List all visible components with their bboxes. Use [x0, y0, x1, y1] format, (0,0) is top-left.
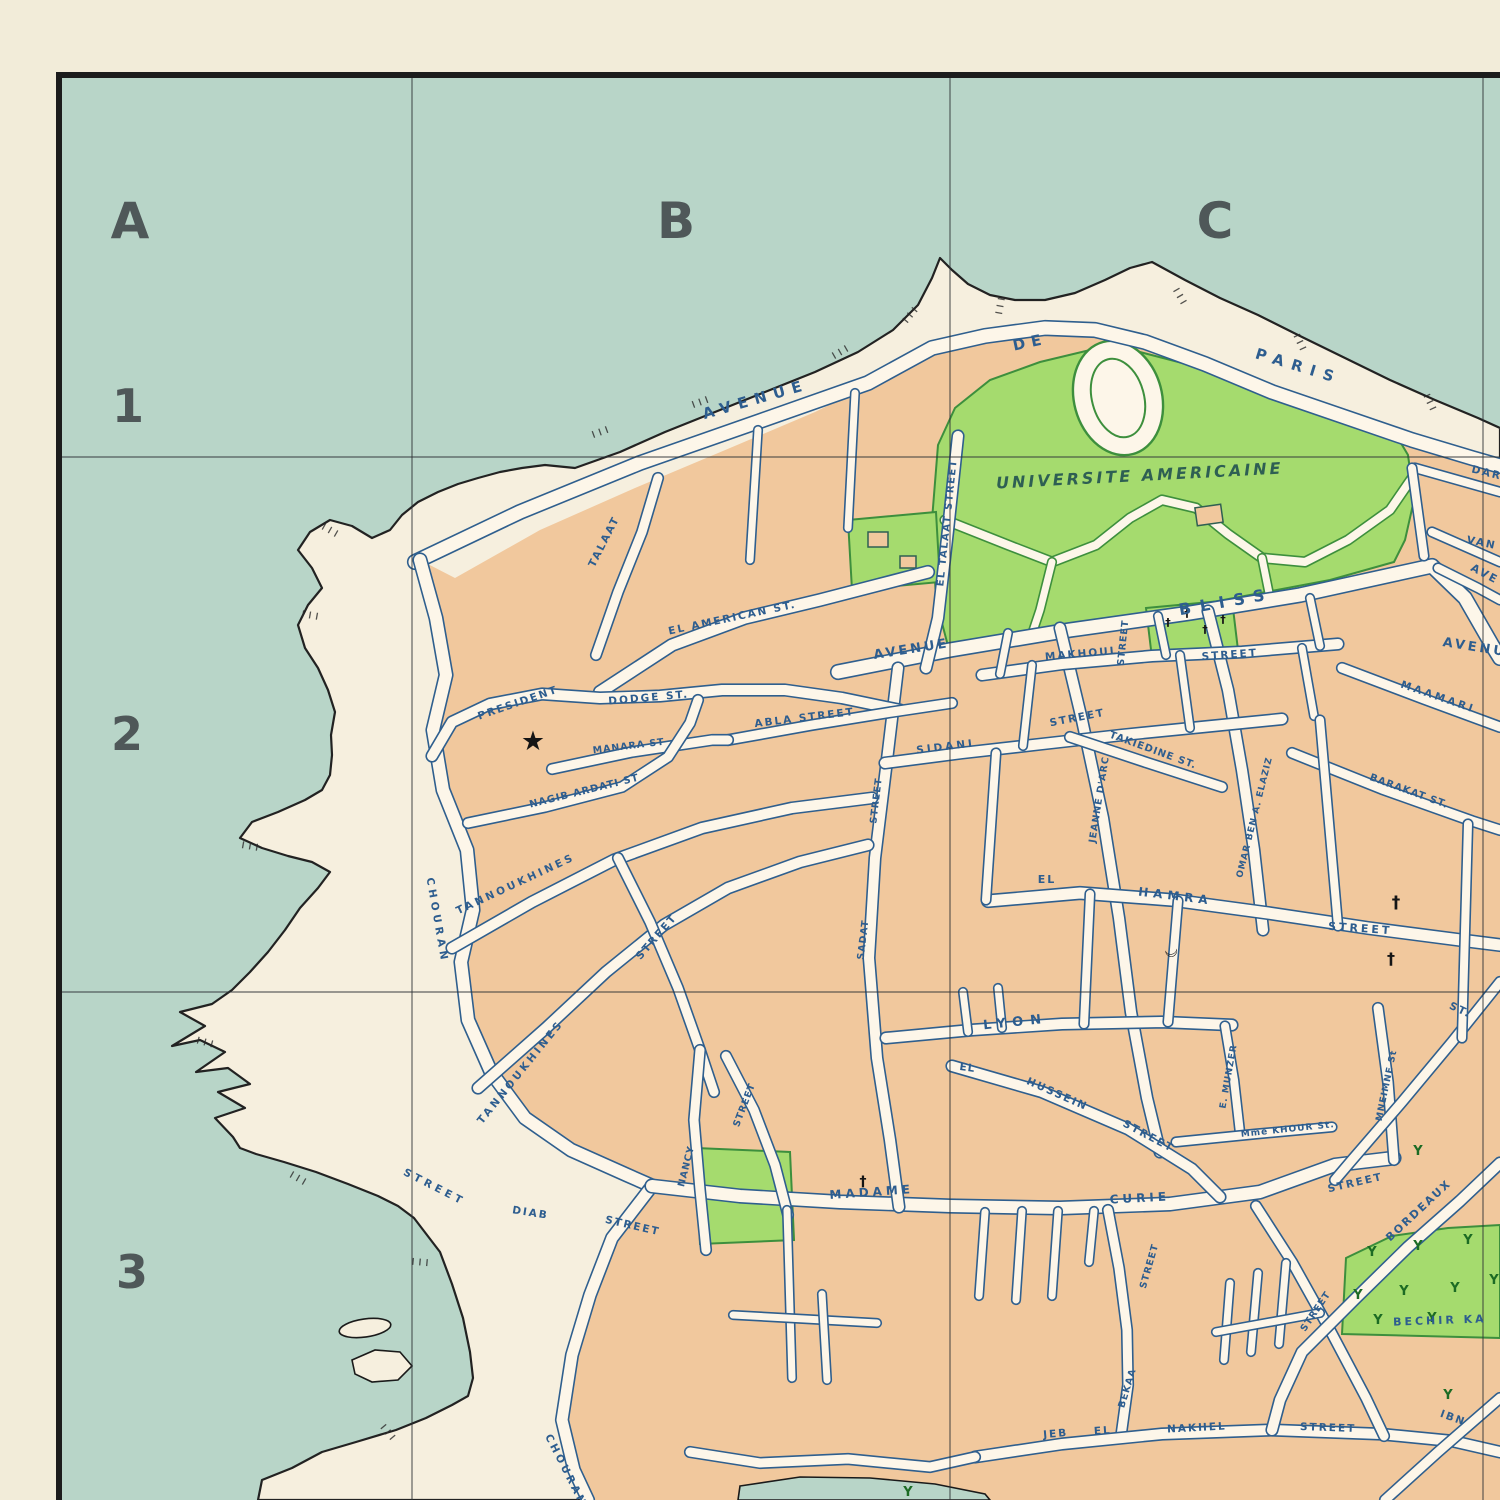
tree-icon: Y [1352, 1288, 1363, 1303]
street-label: EL [1093, 1424, 1112, 1437]
grid-row-number: 1 [112, 379, 144, 433]
tree-icon: Y [1442, 1388, 1453, 1403]
map-image: ★†††††††☾YYYYYYYYYYYY ABC123 AVENUEDEPAR… [0, 0, 1500, 1500]
street-label: STREET [1300, 1421, 1357, 1435]
shore-rock-tick [413, 1258, 414, 1265]
church-cross-icon: † [1387, 949, 1395, 968]
campus-building [900, 556, 916, 568]
church-cross-icon: † [1202, 623, 1208, 636]
tree-icon: Y [902, 1485, 913, 1500]
shore-rock-tick [427, 1259, 428, 1266]
shore-rock-tick [420, 1259, 421, 1266]
street-label: EL [959, 1061, 976, 1075]
campus-building [1195, 504, 1223, 525]
tree-icon: Y [1488, 1273, 1499, 1288]
street-stub [822, 1294, 827, 1380]
street-stub [1089, 1211, 1094, 1262]
church-cross-icon: † [1220, 613, 1226, 626]
tree-icon: Y [1449, 1281, 1460, 1296]
street-label: EL [1038, 873, 1057, 886]
street-label: JEB [1042, 1427, 1069, 1441]
street-stub [787, 1210, 792, 1378]
scanned-map-page: ★†††††††☾YYYYYYYYYYYY ABC123 AVENUEDEPAR… [0, 0, 1500, 1500]
grid-column-letter: A [111, 192, 150, 250]
grid-row-number: 2 [111, 707, 143, 761]
grid-column-letter: C [1197, 192, 1234, 250]
church-cross-icon: † [1392, 893, 1401, 913]
church-cross-icon: † [1165, 616, 1171, 629]
grid-column-letter: B [657, 192, 695, 250]
map-border-top [56, 72, 1500, 78]
tree-icon: Y [1412, 1144, 1423, 1159]
tree-icon: Y [1398, 1284, 1409, 1299]
tree-icon: Y [1412, 1239, 1423, 1254]
tree-icon: Y [1366, 1245, 1377, 1260]
map-border-left [56, 72, 62, 1500]
tree-icon: Y [1372, 1313, 1383, 1328]
campus-building [868, 532, 888, 547]
grid-row-number: 3 [116, 1245, 148, 1299]
street-stub [963, 992, 968, 1032]
lighthouse-star-icon: ★ [521, 726, 545, 757]
tree-icon: Y [1462, 1233, 1473, 1248]
